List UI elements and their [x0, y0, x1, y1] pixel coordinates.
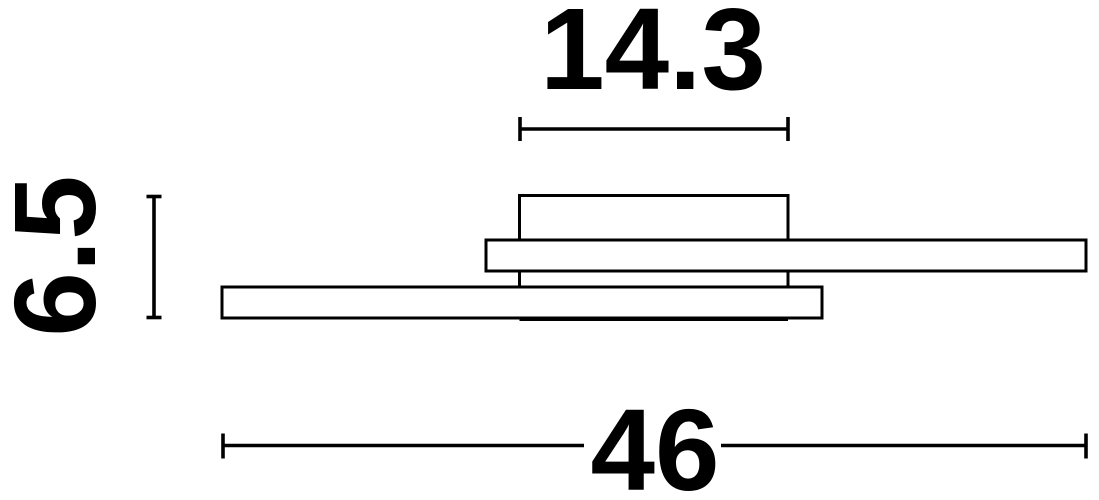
svg-text:46: 46 — [590, 385, 719, 500]
svg-text:6.5: 6.5 — [0, 175, 120, 336]
svg-text:14.3: 14.3 — [540, 0, 766, 114]
